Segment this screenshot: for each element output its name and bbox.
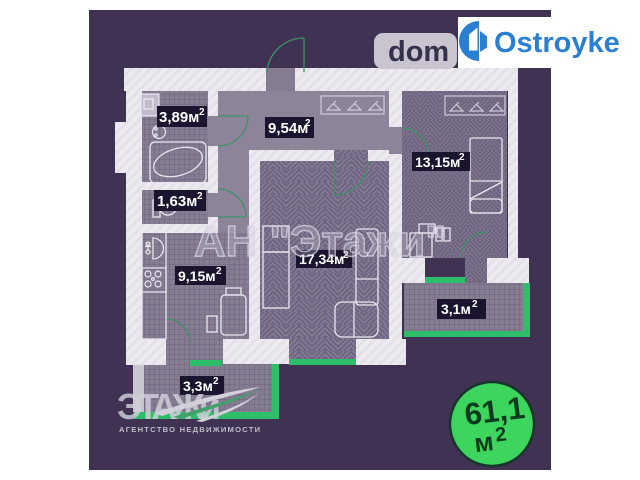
svg-text:1,63м: 1,63м (157, 193, 197, 210)
svg-text:dom: dom (388, 36, 449, 68)
svg-text:3,89м: 3,89м (159, 109, 199, 126)
svg-text:2: 2 (199, 107, 205, 118)
svg-text:АН "Этажи": АН "Этажи" (194, 217, 446, 266)
svg-text:9,54м: 9,54м (268, 120, 308, 137)
svg-text:2: 2 (197, 191, 203, 202)
svg-text:13,15м: 13,15м (415, 154, 460, 170)
svg-text:3,1м: 3,1м (441, 301, 471, 317)
svg-text:АГЕНТСТВО НЕДВИЖИМОСТИ: АГЕНТСТВО НЕДВИЖИМОСТИ (119, 425, 262, 434)
svg-text:2: 2 (472, 299, 478, 310)
svg-text:2: 2 (305, 118, 311, 129)
svg-text:2: 2 (216, 266, 222, 277)
svg-text:9,15м: 9,15м (178, 268, 216, 284)
svg-text:2: 2 (459, 152, 465, 163)
svg-text:м: м (472, 426, 495, 458)
svg-text:Ostroyke: Ostroyke (494, 27, 620, 59)
